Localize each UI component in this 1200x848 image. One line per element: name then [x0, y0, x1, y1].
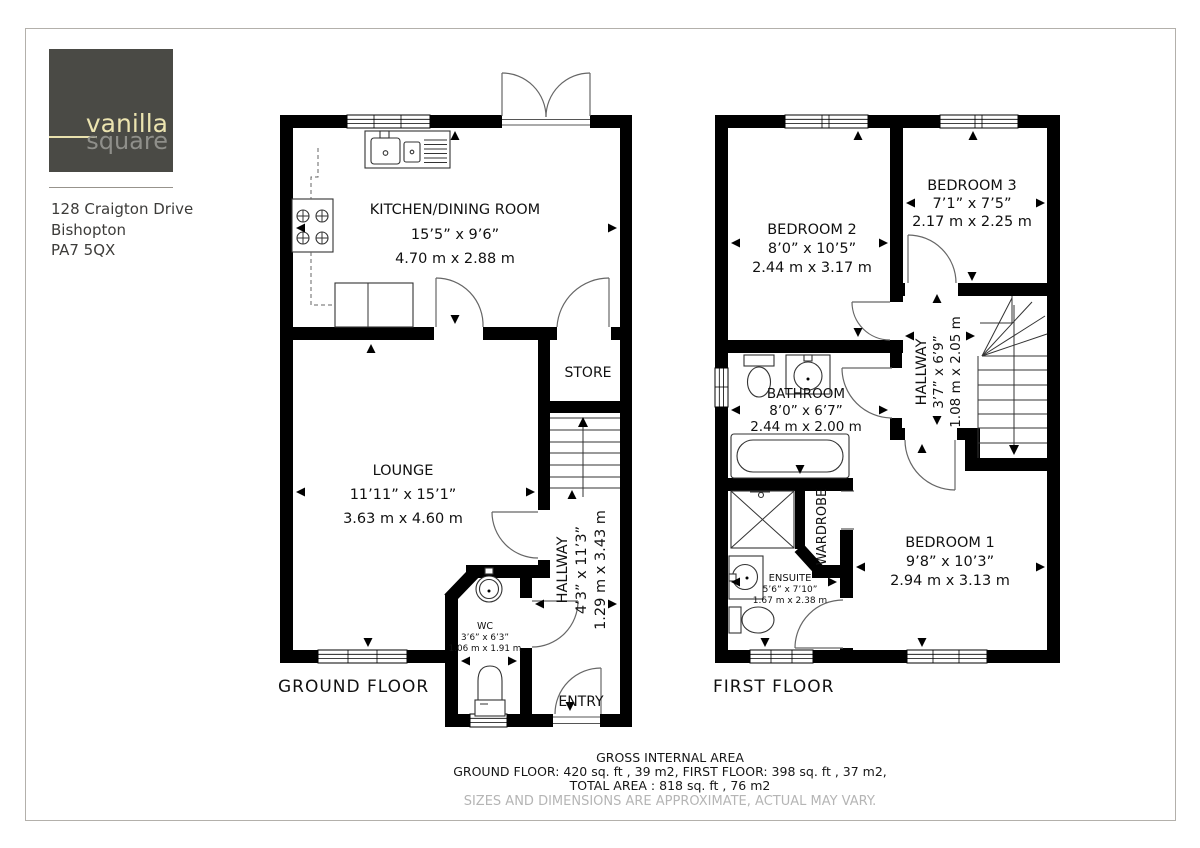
ff-hallway-dims-metric: 1.08 m x 2.05 m — [948, 316, 964, 428]
hallway-label: HALLWAY — [555, 536, 571, 603]
disclaimer-text: SIZES AND DIMENSIONS ARE APPROXIMATE, AC… — [270, 795, 1070, 809]
bedroom1-window-icon — [907, 650, 987, 663]
ensuite-window-icon — [750, 650, 813, 663]
bedroom3-dims-metric: 2.17 m x 2.25 m — [912, 214, 1032, 230]
kitchen-dims-imperial: 15’5” x 9’6” — [411, 227, 499, 243]
area-summary: GROSS INTERNAL AREA GROUND FLOOR: 420 sq… — [270, 751, 1070, 809]
bedroom1-dims-metric: 2.94 m x 3.13 m — [890, 573, 1010, 589]
floor-areas-line: GROUND FLOOR: 420 sq. ft , 39 m2, FIRST … — [270, 765, 1070, 779]
floorplan-drawing: KITCHEN/DINING ROOM 15’5” x 9’6” 4.70 m … — [0, 0, 1200, 848]
first-floor-title: FIRST FLOOR — [713, 677, 834, 697]
entry-label: ENTRY — [558, 694, 604, 710]
bedroom3-door-icon — [908, 235, 956, 283]
bedroom2-dims-imperial: 8’0” x 10’5” — [768, 241, 856, 257]
total-area-line: TOTAL AREA : 818 sq. ft , 76 m2 — [270, 779, 1070, 793]
staircase-down-icon — [978, 296, 1047, 458]
gross-internal-area-title: GROSS INTERNAL AREA — [270, 751, 1070, 765]
bedroom2-dims-metric: 2.44 m x 3.17 m — [752, 260, 872, 276]
ensuite-dims-imperial: 5’6” x 7’10” — [763, 585, 818, 595]
bedroom1-door-icon — [905, 440, 955, 490]
kitchen-sink-icon — [365, 131, 450, 168]
bedroom1-dims-imperial: 9’8” x 10’3” — [906, 554, 994, 570]
ff-hallway-dims-imperial: 3’7” x 6’9” — [931, 335, 947, 409]
wc-door-icon — [532, 601, 578, 647]
kitchen-door-icon — [436, 278, 483, 327]
hallway-dims-imperial: 4’3” x 11’3” — [574, 526, 590, 614]
ground-floor-title: GROUND FLOOR — [278, 677, 429, 697]
bathroom-window-icon — [715, 368, 728, 407]
bedroom2-label: BEDROOM 2 — [767, 222, 857, 238]
ensuite-sink-icon — [729, 556, 763, 599]
hallway-dims-metric: 1.29 m x 3.43 m — [593, 510, 609, 630]
store-door-icon — [557, 278, 609, 327]
bedroom3-label: BEDROOM 3 — [927, 178, 1017, 194]
store-label: STORE — [564, 365, 611, 381]
bedroom2-window-icon — [785, 115, 868, 128]
shower-icon — [731, 491, 794, 548]
lounge-door-icon — [492, 512, 538, 558]
first-floor-plan: BEDROOM 2 8’0” x 10’5” 2.44 m x 3.17 m B… — [713, 115, 1060, 697]
ground-floor-doors — [436, 73, 609, 724]
wc-dims-imperial: 3’6” x 6’3” — [461, 633, 509, 643]
bedroom3-window-icon — [940, 115, 1018, 128]
wardrobe-label: WARDROBE — [815, 489, 830, 565]
wardrobe-opening-icon — [841, 491, 854, 529]
ground-floor-plan: KITCHEN/DINING ROOM 15’5” x 9’6” 4.70 m … — [278, 73, 632, 727]
bathtub-icon — [731, 434, 849, 478]
wc-toilet-icon — [475, 666, 505, 716]
bedroom3-dims-imperial: 7’1” x 7’5” — [933, 196, 1012, 212]
bathroom-dims-metric: 2.44 m x 2.00 m — [750, 419, 862, 435]
kitchen-dims-metric: 4.70 m x 2.88 m — [395, 251, 515, 267]
lounge-dims-imperial: 11’11” x 15’1” — [350, 487, 457, 503]
lounge-dims-metric: 3.63 m x 4.60 m — [343, 511, 463, 527]
kitchen-window-icon — [347, 115, 430, 128]
ensuite-dims-metric: 1.67 m x 2.38 m — [753, 596, 827, 606]
ensuite-door-icon — [795, 600, 843, 648]
kitchen-label: KITCHEN/DINING ROOM — [370, 202, 540, 218]
lounge-label: LOUNGE — [373, 463, 434, 479]
staircase-up-icon — [550, 417, 620, 497]
wc-dims-metric: 1.06 m x 1.91 m — [449, 644, 522, 654]
bedroom1-label: BEDROOM 1 — [905, 535, 995, 551]
wc-label: WC — [477, 621, 493, 632]
ensuite-toilet-icon — [729, 607, 774, 633]
ensuite-label: ENSUITE — [769, 573, 812, 584]
lounge-window-icon — [318, 650, 407, 663]
french-doors-icon — [502, 73, 590, 125]
bathroom-label: BATHROOM — [767, 386, 845, 402]
hob-icon — [292, 199, 333, 252]
floorplan-page: vanilla square 128 Craigton Drive Bishop… — [0, 0, 1200, 848]
ff-hallway-label: HALLWAY — [914, 338, 930, 405]
bathroom-dims-imperial: 8’0” x 6’7” — [769, 403, 843, 419]
